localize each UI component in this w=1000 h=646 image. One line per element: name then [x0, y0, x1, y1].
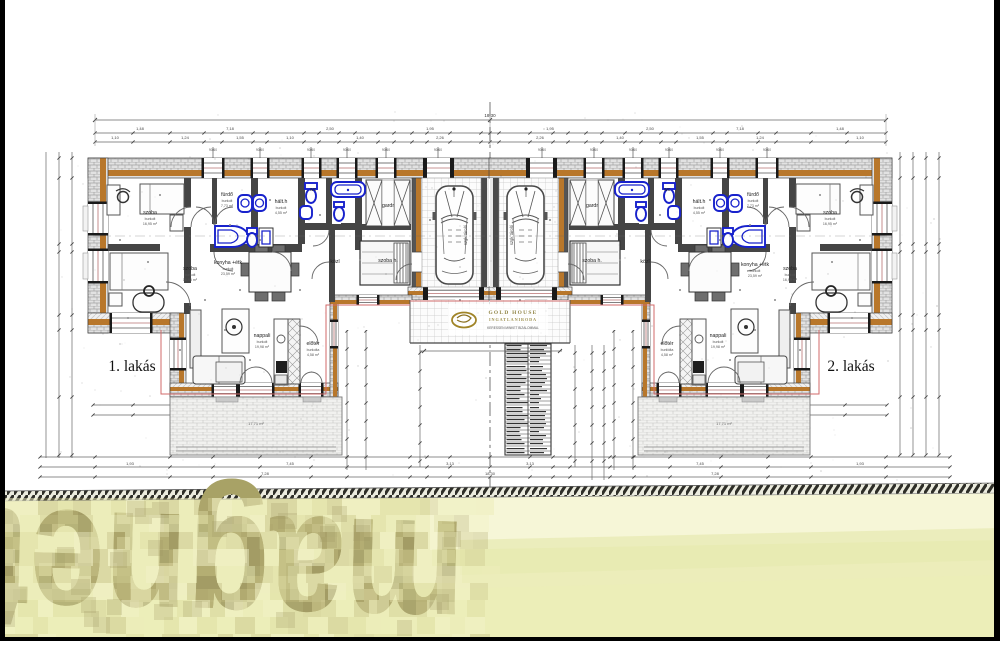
svg-text:2,26: 2,26: [436, 135, 445, 140]
svg-text:23,59 m²: 23,59 m²: [748, 274, 763, 278]
svg-text:1,40: 1,40: [356, 135, 365, 140]
svg-text:90/60: 90/60: [538, 148, 546, 152]
svg-text:burkolt: burkolt: [257, 340, 268, 344]
svg-text:burkolt: burkolt: [694, 206, 705, 210]
svg-text:16,95 m²: 16,95 m²: [783, 278, 798, 282]
svg-text:1,40: 1,40: [616, 135, 625, 140]
svg-text:17,71 m²: 17,71 m²: [716, 421, 732, 426]
svg-text:3,13: 3,13: [526, 461, 535, 466]
svg-text:7,28: 7,28: [711, 471, 720, 476]
svg-text:19,98 m²: 19,98 m²: [711, 345, 726, 349]
svg-text:nappali: nappali: [254, 333, 271, 339]
svg-text:4,55 m²: 4,55 m²: [693, 211, 706, 215]
svg-text:90/60: 90/60: [629, 148, 637, 152]
svg-text:burkolt: burkolt: [785, 273, 796, 277]
svg-text:közl: közl: [330, 259, 339, 265]
svg-text:7,18: 7,18: [736, 126, 745, 131]
svg-text:7,28: 7,28: [261, 471, 270, 476]
svg-text:GOLD HOUSE: GOLD HOUSE: [488, 310, 537, 316]
svg-text:burkolt: burkolt: [825, 217, 836, 221]
svg-text:16,95 m²: 16,95 m²: [823, 222, 838, 226]
svg-text:1,93: 1,93: [126, 461, 135, 466]
svg-text:burkolta: burkolta: [661, 348, 674, 352]
svg-text:szoba: szoba: [183, 266, 197, 272]
svg-text:2,50: 2,50: [646, 126, 655, 131]
svg-text:90/60: 90/60: [382, 148, 390, 152]
svg-text:burkolt: burkolt: [222, 199, 233, 203]
svg-text:17,71 m²: 17,71 m²: [248, 421, 264, 426]
svg-text:nappali: nappali: [710, 333, 727, 339]
svg-text:gardr: gardr: [382, 203, 394, 209]
svg-text:90/60: 90/60: [256, 148, 264, 152]
svg-text:szgk tároló: szgk tároló: [509, 224, 514, 245]
svg-text:90/60: 90/60: [590, 148, 598, 152]
svg-text:közl: közl: [640, 259, 649, 265]
svg-text:hált.h: hált.h: [275, 199, 288, 205]
svg-text:burkolt: burkolt: [748, 199, 759, 203]
svg-text:szoba h.: szoba h.: [582, 258, 602, 264]
svg-text:19,98 m²: 19,98 m²: [255, 345, 270, 349]
svg-text:2,50: 2,50: [326, 126, 335, 131]
svg-text:szoba: szoba: [783, 266, 797, 272]
svg-text:90/60: 90/60: [763, 148, 771, 152]
svg-text:burkolt: burkolt: [276, 206, 287, 210]
svg-text:fürdő: fürdő: [747, 192, 759, 198]
svg-text:1,10: 1,10: [111, 135, 120, 140]
svg-text:szgk tároló: szgk tároló: [463, 224, 468, 245]
svg-text:1,95: 1,95: [426, 126, 435, 131]
svg-text:1,93: 1,93: [856, 461, 865, 466]
svg-text:1,48: 1,48: [836, 126, 845, 131]
svg-text:konyha +étk: konyha +étk: [214, 260, 243, 266]
svg-text:7,73 m²: 7,73 m²: [221, 204, 234, 208]
svg-text:7,45: 7,45: [696, 461, 705, 466]
svg-text:2. lakás: 2. lakás: [827, 358, 874, 375]
svg-text:1,24: 1,24: [181, 135, 190, 140]
svg-text:90/60: 90/60: [307, 148, 315, 152]
svg-text:szoba: szoba: [823, 210, 837, 216]
svg-text:4,58 m²: 4,58 m²: [661, 353, 674, 357]
svg-text:1. lakás: 1. lakás: [108, 358, 155, 375]
svg-text:előtér: előtér: [307, 341, 320, 347]
svg-text:16,95 m²: 16,95 m²: [183, 278, 198, 282]
svg-text:burkolt: burkolt: [713, 340, 724, 344]
svg-text:3,13: 3,13: [446, 461, 455, 466]
svg-text:burkolt: burkolt: [750, 269, 761, 273]
svg-text:2,26: 2,26: [536, 135, 545, 140]
svg-text:90/60: 90/60: [209, 148, 217, 152]
svg-text:7,73 m²: 7,73 m²: [747, 204, 760, 208]
svg-text:szoba h.: szoba h.: [378, 258, 398, 264]
svg-text:1,55: 1,55: [236, 135, 245, 140]
svg-text:konyha +étk: konyha +étk: [741, 262, 770, 268]
svg-text:wc: wc: [664, 187, 671, 193]
svg-text:4,55 m²: 4,55 m²: [275, 211, 288, 215]
svg-text:4,58 m²: 4,58 m²: [307, 353, 320, 357]
svg-text:1,10: 1,10: [286, 135, 295, 140]
svg-text:burkolta: burkolta: [307, 348, 320, 352]
svg-text:1,24: 1,24: [756, 135, 765, 140]
svg-text:KERESSEN MINKET BIZALOMMAL: KERESSEN MINKET BIZALOMMAL: [487, 326, 539, 330]
svg-text:90/60: 90/60: [665, 148, 673, 152]
svg-text:7,45: 7,45: [286, 461, 295, 466]
svg-text:1,55: 1,55: [696, 135, 705, 140]
svg-text:90/60: 90/60: [716, 148, 724, 152]
svg-text:1,95: 1,95: [546, 126, 555, 131]
svg-text:szoba: szoba: [143, 210, 157, 216]
svg-text:hált.h: hált.h: [693, 199, 706, 205]
svg-text:90/60: 90/60: [343, 148, 351, 152]
svg-text:23,59 m²: 23,59 m²: [221, 272, 236, 276]
svg-text:előtér: előtér: [661, 341, 674, 347]
svg-text:fürdő: fürdő: [221, 192, 233, 198]
svg-text:gardr: gardr: [586, 203, 598, 209]
svg-text:burkolt: burkolt: [185, 273, 196, 277]
svg-text:16,95 m²: 16,95 m²: [143, 222, 158, 226]
svg-text:burkolt: burkolt: [223, 267, 234, 271]
svg-text:wc: wc: [310, 187, 317, 193]
svg-text:7,18: 7,18: [226, 126, 235, 131]
svg-text:1,10: 1,10: [856, 135, 865, 140]
svg-text:burkolt: burkolt: [145, 217, 156, 221]
svg-text:INGATLANIRODA: INGATLANIRODA: [489, 317, 537, 322]
svg-text:90/60: 90/60: [434, 148, 442, 152]
